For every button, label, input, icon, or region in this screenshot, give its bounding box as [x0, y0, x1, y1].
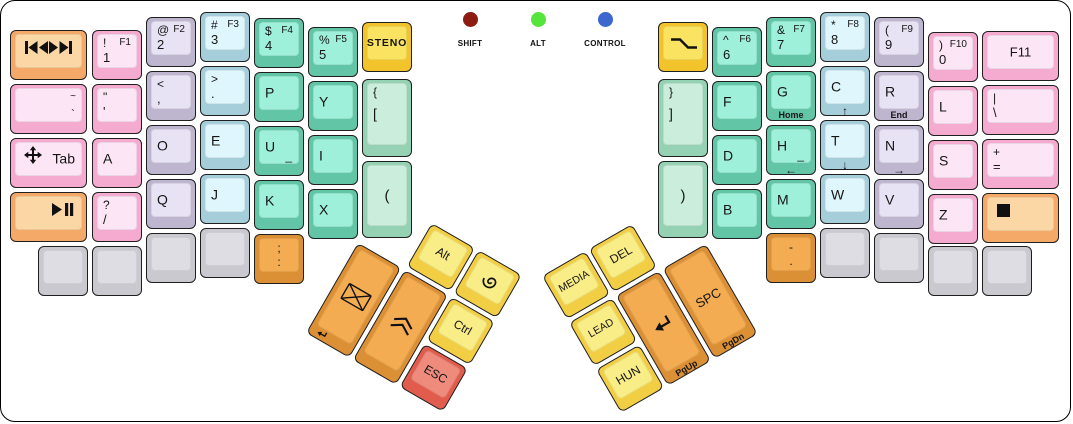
- key-t[interactable]: T↓: [820, 120, 870, 170]
- key-h-label: H: [777, 138, 787, 152]
- key-k[interactable]: K: [254, 180, 304, 230]
- key-g-cap: G: [771, 75, 811, 109]
- key-esc-label: ESC: [422, 363, 449, 386]
- key-tilde-grave-label: `: [71, 108, 75, 120]
- key-u-label: _: [285, 150, 292, 162]
- key-left-bracket[interactable]: {[: [362, 79, 412, 157]
- shift-led-icon: [463, 12, 478, 27]
- key-2[interactable]: @F22: [146, 17, 196, 67]
- key-n-label: →: [875, 164, 923, 176]
- key-slash[interactable]: ?/: [92, 192, 142, 242]
- key-s-cap: S: [933, 144, 973, 178]
- key-d-cap: D: [717, 139, 757, 173]
- key-g-label: G: [777, 84, 788, 98]
- key-y-cap: Y: [313, 85, 353, 119]
- key-6[interactable]: ^F66: [712, 27, 762, 77]
- key-8-cap: *F88: [825, 16, 865, 50]
- key-hun-cap: HUN: [602, 350, 654, 399]
- key-blank-l3-cap: [151, 237, 191, 271]
- key-quote[interactable]: "': [92, 84, 142, 134]
- key-blank-r4[interactable]: [982, 246, 1032, 296]
- indicator-alt: ALT: [503, 12, 573, 48]
- key-b-label: B: [723, 202, 732, 216]
- key-period-label: >: [211, 73, 218, 85]
- key-lead-cap: LEAD: [575, 304, 627, 353]
- key-9-label: (: [885, 24, 889, 36]
- key-n-label: N: [885, 138, 895, 152]
- key-left-paren-cap: (: [367, 165, 407, 226]
- key-q[interactable]: Q: [146, 179, 196, 229]
- key-s[interactable]: S: [928, 140, 978, 190]
- key-pipe-backslash-label: |: [993, 92, 996, 104]
- key-0-label: 0: [939, 53, 946, 66]
- alt-led-icon: [531, 12, 546, 27]
- key-hun-label: HUN: [613, 364, 642, 387]
- key-minus-period-label: -: [789, 241, 793, 253]
- key-comma-cap: <,: [151, 75, 191, 109]
- key-3-cap: #F33: [205, 16, 245, 50]
- key-blank-l3[interactable]: [146, 233, 196, 283]
- key-6-label: F6: [739, 35, 751, 45]
- key-q-cap: Q: [151, 183, 191, 217]
- key-1-label: !: [103, 37, 106, 49]
- key-9-cap: (F99: [879, 21, 919, 55]
- key-media-prev-next[interactable]: [10, 30, 87, 80]
- key-blank-r1[interactable]: [820, 228, 870, 278]
- key-plus-equals[interactable]: +=: [982, 139, 1059, 189]
- key-4-label: F4: [281, 26, 293, 36]
- key-5-label: %: [319, 34, 330, 46]
- key-5-cap: %F55: [313, 31, 353, 65]
- key-pipe-backslash-cap: |\: [987, 89, 1054, 123]
- key-c[interactable]: C↑: [820, 66, 870, 116]
- key-0-cap: )F100: [933, 36, 973, 70]
- key-c-label: ↑: [821, 105, 869, 117]
- key-4-label: $: [265, 25, 272, 37]
- key-play-pause-cap: [15, 196, 82, 230]
- key-u-label: U: [265, 139, 275, 153]
- key-d-label: D: [723, 148, 733, 162]
- key-blank-l1-cap: [43, 250, 83, 284]
- key-2-cap: @F22: [151, 21, 191, 55]
- key-h-cap: H_: [771, 129, 811, 163]
- key-8-label: F8: [847, 20, 859, 30]
- key-left-paren[interactable]: (: [362, 161, 412, 238]
- key-steno[interactable]: STENO: [362, 22, 412, 72]
- key-r-label: R: [885, 84, 895, 98]
- key-g[interactable]: GHome: [766, 71, 816, 121]
- key-2-label: @: [157, 24, 169, 36]
- key-a-cap: A: [97, 142, 137, 176]
- media-next-icon: [48, 34, 73, 60]
- key-comma[interactable]: <,: [146, 71, 196, 121]
- key-7-label: 7: [777, 38, 784, 51]
- control-led-label: CONTROL: [584, 39, 626, 48]
- key-t-cap: T: [825, 124, 865, 158]
- key-minus-period[interactable]: -.: [766, 233, 816, 283]
- key-6-cap: ^F66: [717, 31, 757, 65]
- option-icon: [663, 26, 703, 60]
- key-right-bracket-cap: }]: [663, 83, 703, 145]
- key-right-bracket[interactable]: }]: [658, 79, 708, 157]
- key-period-cap: >.: [205, 70, 245, 104]
- key-steno-label: STENO: [367, 38, 407, 49]
- key-o-label: O: [157, 138, 168, 152]
- key-play-pause[interactable]: [10, 192, 87, 242]
- key-e-cap: E: [205, 124, 245, 158]
- key-option[interactable]: [658, 22, 708, 72]
- key-m-cap: M: [771, 183, 811, 217]
- key-j-label: J: [211, 187, 218, 201]
- key-f-cap: F: [717, 85, 757, 119]
- key-semicolon-label: ;: [277, 242, 280, 254]
- key-r-label: End: [875, 111, 923, 120]
- key-b[interactable]: B: [712, 189, 762, 239]
- key-f11[interactable]: F11: [982, 31, 1059, 81]
- key-p-cap: P: [259, 76, 299, 110]
- play-pause-icon: [51, 196, 74, 222]
- key-blank-l2-cap: [97, 250, 137, 284]
- indicator-shift: SHIFT: [435, 12, 505, 48]
- key-blank-r2-cap: [879, 237, 919, 271]
- key-slash-cap: ?/: [97, 196, 137, 230]
- key-plus-equals-label: =: [993, 160, 1001, 173]
- key-w-cap: W: [825, 178, 865, 212]
- key-4[interactable]: $F44: [254, 18, 304, 68]
- key-w-label: W: [831, 187, 844, 201]
- key-6-label: 6: [723, 48, 730, 61]
- key-f11-label: F11: [1010, 46, 1031, 59]
- key-3-label: 3: [211, 33, 218, 46]
- key-c-cap: C: [825, 70, 865, 104]
- key-media-label: MEDIA: [557, 269, 591, 295]
- key-1-label: F1: [119, 38, 131, 48]
- key-semicolon-cap: ;:: [259, 238, 299, 272]
- key-c-label: C: [831, 79, 841, 93]
- key-slash-label: /: [103, 213, 107, 226]
- key-alt-cap: Alt: [417, 229, 469, 278]
- key-i-cap: I: [313, 139, 353, 173]
- key-tilde-grave-cap: ~`: [15, 88, 82, 122]
- key-steno-cap: STENO: [367, 26, 407, 60]
- key-blank-r3-cap: [933, 250, 973, 284]
- key-v-label: V: [885, 192, 894, 206]
- key-9[interactable]: (F99: [874, 17, 924, 67]
- key-f-label: F: [723, 94, 732, 108]
- key-n-cap: N: [879, 129, 919, 163]
- key-7-label: F7: [793, 25, 805, 35]
- key-l[interactable]: L: [928, 86, 978, 136]
- key-8-label: 8: [831, 33, 838, 46]
- key-u[interactable]: U_: [254, 126, 304, 176]
- key-ctrl-cap: Ctrl: [437, 303, 489, 352]
- key-semicolon[interactable]: ;:: [254, 234, 304, 284]
- key-quote-label: ': [103, 105, 105, 118]
- key-1[interactable]: !F11: [92, 30, 142, 80]
- key-o-cap: O: [151, 129, 191, 163]
- key-r[interactable]: REnd: [874, 71, 924, 121]
- key-blank-l1[interactable]: [38, 246, 88, 296]
- key-e[interactable]: E: [200, 120, 250, 170]
- key-z[interactable]: Z: [928, 194, 978, 244]
- key-v-cap: V: [879, 183, 919, 217]
- key-8-label: *: [831, 19, 836, 31]
- stop-icon: [996, 197, 1011, 223]
- key-1-label: 1: [103, 51, 110, 64]
- key-del-label: DEL: [607, 244, 633, 266]
- key-4-label: 4: [265, 39, 272, 52]
- key-quote-cap: "': [97, 88, 137, 122]
- key-right-paren-label: ): [681, 188, 686, 203]
- key-7[interactable]: &F77: [766, 17, 816, 67]
- keyboard: SHIFT ALT CONTROL ~`Tab!F11"'A?/@F22<,OQ…: [0, 0, 1073, 424]
- key-pipe-backslash[interactable]: |\: [982, 85, 1059, 135]
- key-tab-cap: Tab: [15, 142, 82, 176]
- key-m[interactable]: M: [766, 179, 816, 229]
- key-5-label: F5: [335, 35, 347, 45]
- key-w[interactable]: W: [820, 174, 870, 224]
- key-m-label: M: [777, 192, 789, 206]
- key-left-bracket-cap: {[: [367, 83, 407, 145]
- key-esc-cap: ESC: [410, 349, 462, 398]
- key-j[interactable]: J: [200, 174, 250, 224]
- alt-led-label: ALT: [530, 39, 546, 48]
- key-minus-period-label: .: [789, 255, 792, 267]
- key-right-bracket-label: ]: [669, 106, 673, 120]
- key-3-label: F3: [227, 20, 239, 30]
- key-0-label: ): [939, 39, 943, 51]
- key-v[interactable]: V: [874, 179, 924, 229]
- key-tilde-grave-label: ~: [70, 92, 76, 102]
- key-tab-label: Tab: [52, 151, 75, 165]
- key-f11-cap: F11: [987, 35, 1054, 69]
- key-quote-label: ": [103, 91, 107, 103]
- key-z-cap: Z: [933, 198, 973, 232]
- key-7-cap: &F77: [771, 21, 811, 55]
- key-0[interactable]: )F100: [928, 32, 978, 82]
- indicator-control: CONTROL: [570, 12, 640, 48]
- key-comma-label: <: [157, 78, 164, 90]
- media-prev-icon: [24, 34, 49, 60]
- key-x-label: X: [319, 202, 328, 216]
- key-h-label: ←: [767, 164, 815, 176]
- key-k-label: K: [265, 193, 274, 207]
- key-u-cap: U_: [259, 130, 299, 164]
- key-e-label: E: [211, 133, 220, 147]
- key-k-cap: K: [259, 184, 299, 218]
- key-1-cap: !F11: [97, 34, 137, 68]
- key-l-cap: L: [933, 90, 973, 124]
- key-tilde-grave[interactable]: ~`: [10, 84, 87, 134]
- key-a[interactable]: A: [92, 138, 142, 188]
- key-3[interactable]: #F33: [200, 12, 250, 62]
- key-o[interactable]: O: [146, 125, 196, 175]
- key-comma-label: ,: [157, 92, 161, 105]
- key-option-cap: [663, 26, 703, 60]
- key-left-bracket-label: {: [373, 86, 377, 98]
- key-t-label: T: [831, 133, 840, 147]
- key-6-label: ^: [723, 34, 729, 46]
- key-j-cap: J: [205, 178, 245, 212]
- key-media-prev-next-cap: [15, 34, 82, 68]
- key-d[interactable]: D: [712, 135, 762, 185]
- key-blank-r4-cap: [987, 250, 1027, 284]
- key-blank-r1-cap: [825, 232, 865, 266]
- key-del-cap: DEL: [595, 230, 647, 279]
- key-i-label: I: [319, 148, 323, 162]
- key-left-paren-label: (: [385, 188, 390, 203]
- key-alt-label: Alt: [434, 245, 452, 262]
- key-y-label: Y: [319, 94, 328, 108]
- key-plus-equals-label: +: [993, 146, 1000, 158]
- key-semicolon-label: :: [277, 256, 280, 268]
- key-left-bracket-label: [: [373, 106, 377, 120]
- key-tab[interactable]: Tab: [10, 138, 87, 188]
- key-a-label: A: [103, 151, 112, 165]
- key-t-label: ↓: [821, 159, 869, 171]
- shift-led-label: SHIFT: [458, 39, 483, 48]
- key-plus-equals-cap: +=: [987, 143, 1054, 177]
- key-right-bracket-label: }: [669, 86, 673, 98]
- key-y[interactable]: Y: [308, 81, 358, 131]
- key-lead-label: LEAD: [586, 317, 615, 340]
- key-space-label: SPC: [693, 286, 723, 311]
- key-right-paren[interactable]: ): [658, 161, 708, 238]
- key-period[interactable]: >.: [200, 66, 250, 116]
- key-blank-l4-cap: [205, 232, 245, 266]
- key-blank-l4[interactable]: [200, 228, 250, 278]
- key-i[interactable]: I: [308, 135, 358, 185]
- key-f[interactable]: F: [712, 81, 762, 131]
- key-p-label: P: [265, 85, 274, 99]
- key-stop[interactable]: [982, 193, 1059, 243]
- key-p[interactable]: P: [254, 72, 304, 122]
- key-spiral-cap: [464, 256, 516, 305]
- key-4-cap: $F44: [259, 22, 299, 56]
- key-slash-label: ?: [103, 199, 110, 211]
- key-7-label: &: [777, 24, 785, 36]
- key-period-label: .: [211, 87, 215, 100]
- key-b-cap: B: [717, 193, 757, 227]
- key-x[interactable]: X: [308, 189, 358, 239]
- key-ctrl-label: Ctrl: [452, 318, 474, 338]
- key-2-label: F2: [173, 25, 185, 35]
- key-l-label: L: [939, 99, 947, 113]
- move-icon: [24, 142, 42, 168]
- key-8[interactable]: *F88: [820, 12, 870, 62]
- key-h[interactable]: H_←: [766, 125, 816, 175]
- key-n[interactable]: N→: [874, 125, 924, 175]
- key-0-label: F10: [950, 40, 967, 50]
- key-q-label: Q: [157, 192, 168, 206]
- key-h-label: _: [797, 149, 804, 161]
- key-s-label: S: [939, 153, 948, 167]
- key-r-cap: R: [879, 75, 919, 109]
- key-minus-period-cap: -.: [771, 237, 811, 271]
- key-blank-l2[interactable]: [92, 246, 142, 296]
- key-right-paren-cap: ): [663, 165, 703, 226]
- key-blank-r3[interactable]: [928, 246, 978, 296]
- key-5-label: 5: [319, 48, 326, 61]
- key-3-label: #: [211, 19, 218, 31]
- key-x-cap: X: [313, 193, 353, 227]
- key-stop-cap: [987, 197, 1054, 231]
- key-9-label: 9: [885, 38, 892, 51]
- key-z-label: Z: [939, 207, 948, 221]
- key-media-cap: MEDIA: [548, 257, 600, 306]
- key-5[interactable]: %F55: [308, 27, 358, 77]
- key-pipe-backslash-label: \: [993, 106, 997, 119]
- control-led-icon: [598, 12, 613, 27]
- key-9-label: F9: [901, 25, 913, 35]
- spiral-icon: [464, 256, 516, 305]
- key-2-label: 2: [157, 38, 164, 51]
- key-g-label: Home: [767, 111, 815, 120]
- key-blank-r2[interactable]: [874, 233, 924, 283]
